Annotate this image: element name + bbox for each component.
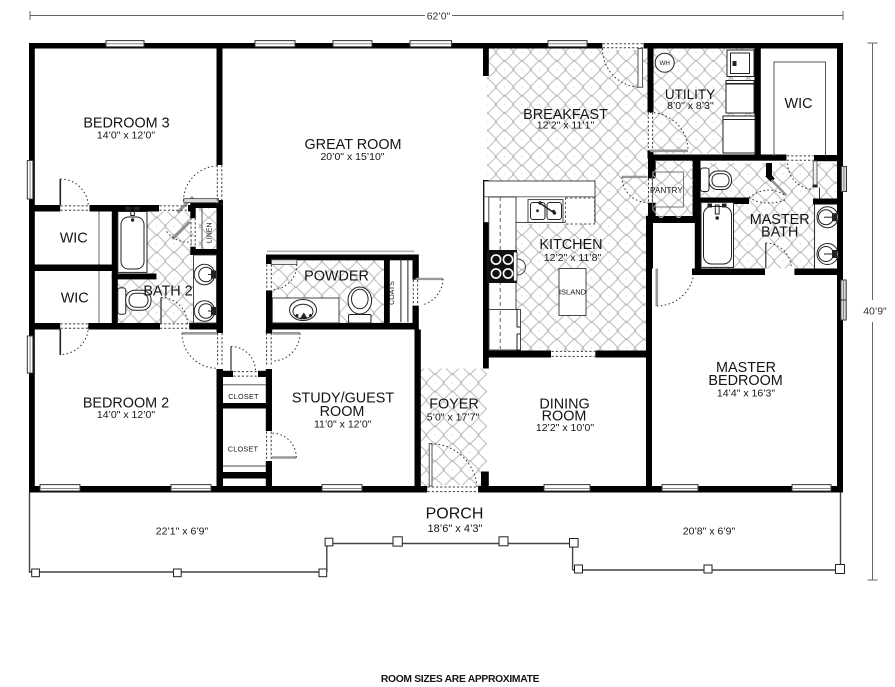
svg-text:40’9": 40’9" [863,306,887,318]
svg-text:20’8" x 6’9": 20’8" x 6’9" [683,526,736,538]
svg-text:8’0" x 8’3": 8’0" x 8’3" [667,100,714,112]
svg-text:CLOSET: CLOSET [228,392,259,401]
svg-text:14’0" x 12’0": 14’0" x 12’0" [97,409,156,421]
svg-text:5’0" x 17’7": 5’0" x 17’7" [427,411,480,423]
svg-text:WIC: WIC [60,231,88,247]
svg-text:14’4" x 16’3": 14’4" x 16’3" [717,388,776,400]
svg-text:20’0" x 15’10": 20’0" x 15’10" [320,151,384,163]
svg-text:PORCH: PORCH [426,506,484,523]
svg-text:KITCHEN: KITCHEN [539,237,602,253]
svg-text:BATH: BATH [761,225,798,241]
svg-text:BATH 2: BATH 2 [143,284,192,300]
svg-text:PANTRY: PANTRY [650,186,683,195]
svg-text:12’2" x 11’1": 12’2" x 11’1" [537,120,595,132]
svg-text:22’1" x 6’9": 22’1" x 6’9" [156,526,209,538]
svg-text:ROOM SIZES ARE APPROXIMATE: ROOM SIZES ARE APPROXIMATE [381,674,540,685]
svg-text:12’2" x 11’8": 12’2" x 11’8" [544,252,602,264]
svg-text:LINEN: LINEN [207,222,214,243]
svg-text:POWDER: POWDER [304,268,369,284]
svg-text:ISLAND: ISLAND [559,288,587,297]
svg-text:62’0": 62’0" [427,11,451,23]
svg-text:18’6" x 4’3": 18’6" x 4’3" [428,523,483,535]
svg-text:11’0" x 12’0": 11’0" x 12’0" [314,418,372,430]
svg-text:CLOSET: CLOSET [228,445,259,454]
svg-text:14’0" x 12’0": 14’0" x 12’0" [97,129,156,141]
svg-text:WH: WH [659,60,670,67]
svg-text:COATS: COATS [389,281,396,305]
svg-text:WIC: WIC [61,291,89,307]
svg-text:12’2" x 10’0": 12’2" x 10’0" [536,422,595,434]
svg-text:WIC: WIC [785,96,813,112]
svg-text:FOYER: FOYER [429,397,479,413]
